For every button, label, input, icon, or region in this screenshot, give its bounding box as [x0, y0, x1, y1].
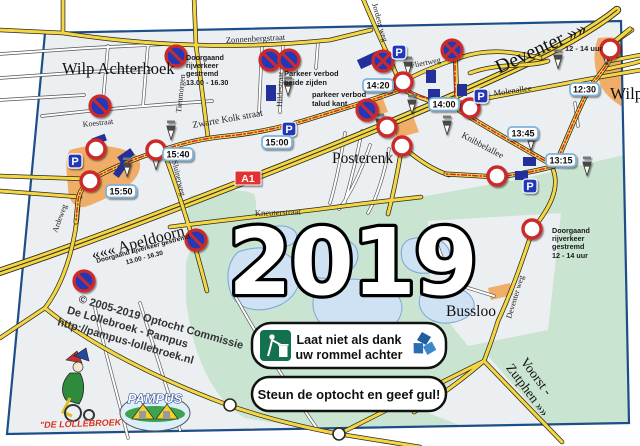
svg-text:13:15: 13:15: [549, 156, 572, 166]
waypoint-icon: [523, 220, 541, 238]
place-wilp: Wilp: [610, 84, 640, 103]
notice-line: 13.00 - 16.30: [186, 78, 228, 87]
notice-line: parkeer verbod: [312, 90, 367, 99]
support-banner: Steun de optocht en geef gul!: [252, 377, 446, 411]
svg-text:A1: A1: [241, 173, 255, 185]
svg-text:P: P: [285, 124, 292, 136]
time-badge: 14:00: [429, 98, 459, 111]
optocht-route-poster: P P P P P A1 15:50 15:40 15:00 14:20 14:…: [0, 0, 640, 446]
no-parking-icon: [357, 100, 377, 120]
parking-icon: P: [68, 154, 82, 168]
pampus-logo: PAMPUS: [120, 391, 190, 431]
svg-text:14:00: 14:00: [432, 100, 455, 110]
no-parking-icon: [260, 50, 280, 70]
place-posterenk: Posterenk: [332, 150, 393, 167]
a1-road-badge: A1: [235, 171, 261, 185]
litter-text-line2: uw rommel achter: [296, 348, 403, 362]
time-badge: 12:30: [570, 83, 599, 96]
waypoint-icon: [81, 172, 99, 190]
time-badge: 13:45: [508, 127, 538, 140]
notice-line: gestremd: [552, 242, 584, 251]
litter-banner: Laat niet als dank uw rommel achter: [252, 323, 446, 368]
pampus-logo-text: PAMPUS: [128, 391, 183, 406]
waypoint-icon: [87, 140, 105, 158]
svg-text:12:30: 12:30: [573, 85, 596, 95]
time-badge: 14:20: [363, 79, 393, 92]
no-parking-icon: [279, 50, 299, 70]
svg-text:15:40: 15:40: [166, 150, 189, 160]
svg-text:P: P: [477, 91, 484, 103]
tidyman-icon: [260, 330, 291, 361]
no-stopping-icon: [442, 40, 462, 60]
notice-line: gestremd: [186, 69, 218, 78]
svg-text:P: P: [526, 181, 533, 193]
svg-text:P: P: [395, 47, 402, 59]
notice-line: Parkeer verbod: [284, 69, 339, 78]
time-badge: 13:15: [546, 154, 576, 167]
route-map: P P P P P A1 15:50 15:40 15:00 14:20 14:…: [0, 0, 640, 446]
notice-gestremd-east: Doorgaand rijverkeer gestremd 12 - 14 uu…: [552, 226, 590, 260]
svg-text:15:00: 15:00: [265, 138, 288, 148]
waypoint-icon: [394, 73, 412, 91]
svg-text:P: P: [71, 156, 78, 168]
no-parking-icon: [74, 271, 94, 291]
litter-text-line1: Laat niet als dank: [297, 333, 402, 347]
year-title: 2019: [228, 209, 476, 316]
notice-line: 12 - 14 uur: [552, 251, 588, 260]
time-badge: 15:00: [262, 136, 292, 149]
notice-line: talud kant: [312, 99, 348, 108]
place-wilp-achterhoek: Wilp Achterhoek: [62, 59, 175, 78]
svg-text:15:50: 15:50: [109, 187, 132, 197]
parking-icon: P: [392, 45, 406, 59]
parking-icon: P: [282, 122, 296, 136]
waypoint-icon: [393, 137, 411, 155]
parking-icon: P: [474, 89, 488, 103]
svg-text:13:45: 13:45: [511, 129, 534, 139]
no-parking-icon: [90, 96, 110, 116]
time-badge: 15:50: [106, 185, 136, 198]
parking-icon: P: [523, 179, 537, 193]
notice-line: beide zijden: [284, 78, 327, 87]
svg-text:14:20: 14:20: [366, 81, 389, 91]
support-text: Steun de optocht en geef gul!: [258, 387, 441, 402]
no-stopping-icon: [373, 51, 393, 71]
waypoint-icon: [378, 118, 396, 136]
waypoint-icon: [488, 167, 506, 185]
waypoint-icon: [601, 40, 619, 58]
